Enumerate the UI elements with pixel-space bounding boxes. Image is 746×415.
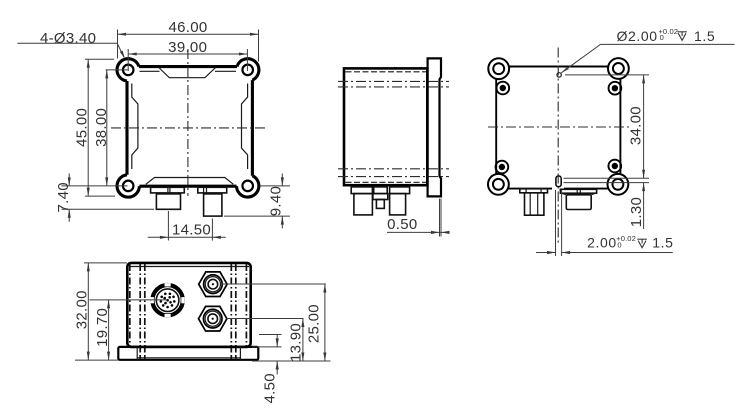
svg-text:14.50: 14.50 <box>172 222 211 239</box>
svg-text:4-Ø3.40: 4-Ø3.40 <box>40 30 96 47</box>
svg-text:25.00: 25.00 <box>306 304 323 343</box>
svg-text:0.50: 0.50 <box>387 216 417 233</box>
svg-text:1.5: 1.5 <box>652 235 673 251</box>
svg-text:32.00: 32.00 <box>74 290 91 329</box>
svg-text:46.00: 46.00 <box>168 19 207 36</box>
svg-text:38.00: 38.00 <box>93 108 110 147</box>
svg-text:1.30: 1.30 <box>628 197 645 227</box>
svg-text:9.40: 9.40 <box>268 186 285 216</box>
svg-text:34.00: 34.00 <box>628 106 645 145</box>
svg-text:39.00: 39.00 <box>168 39 207 56</box>
svg-text:13.90: 13.90 <box>287 323 304 362</box>
svg-text:4.50: 4.50 <box>262 373 279 403</box>
svg-text:1.5: 1.5 <box>694 28 715 44</box>
svg-text:45.00: 45.00 <box>74 108 91 147</box>
svg-text:19.70: 19.70 <box>94 308 111 347</box>
svg-text:2.00: 2.00 <box>587 235 617 251</box>
svg-text:Ø2.00: Ø2.00 <box>617 28 658 44</box>
svg-text:7.40: 7.40 <box>55 182 72 212</box>
svg-text:0: 0 <box>660 33 664 42</box>
svg-text:0: 0 <box>617 240 621 249</box>
